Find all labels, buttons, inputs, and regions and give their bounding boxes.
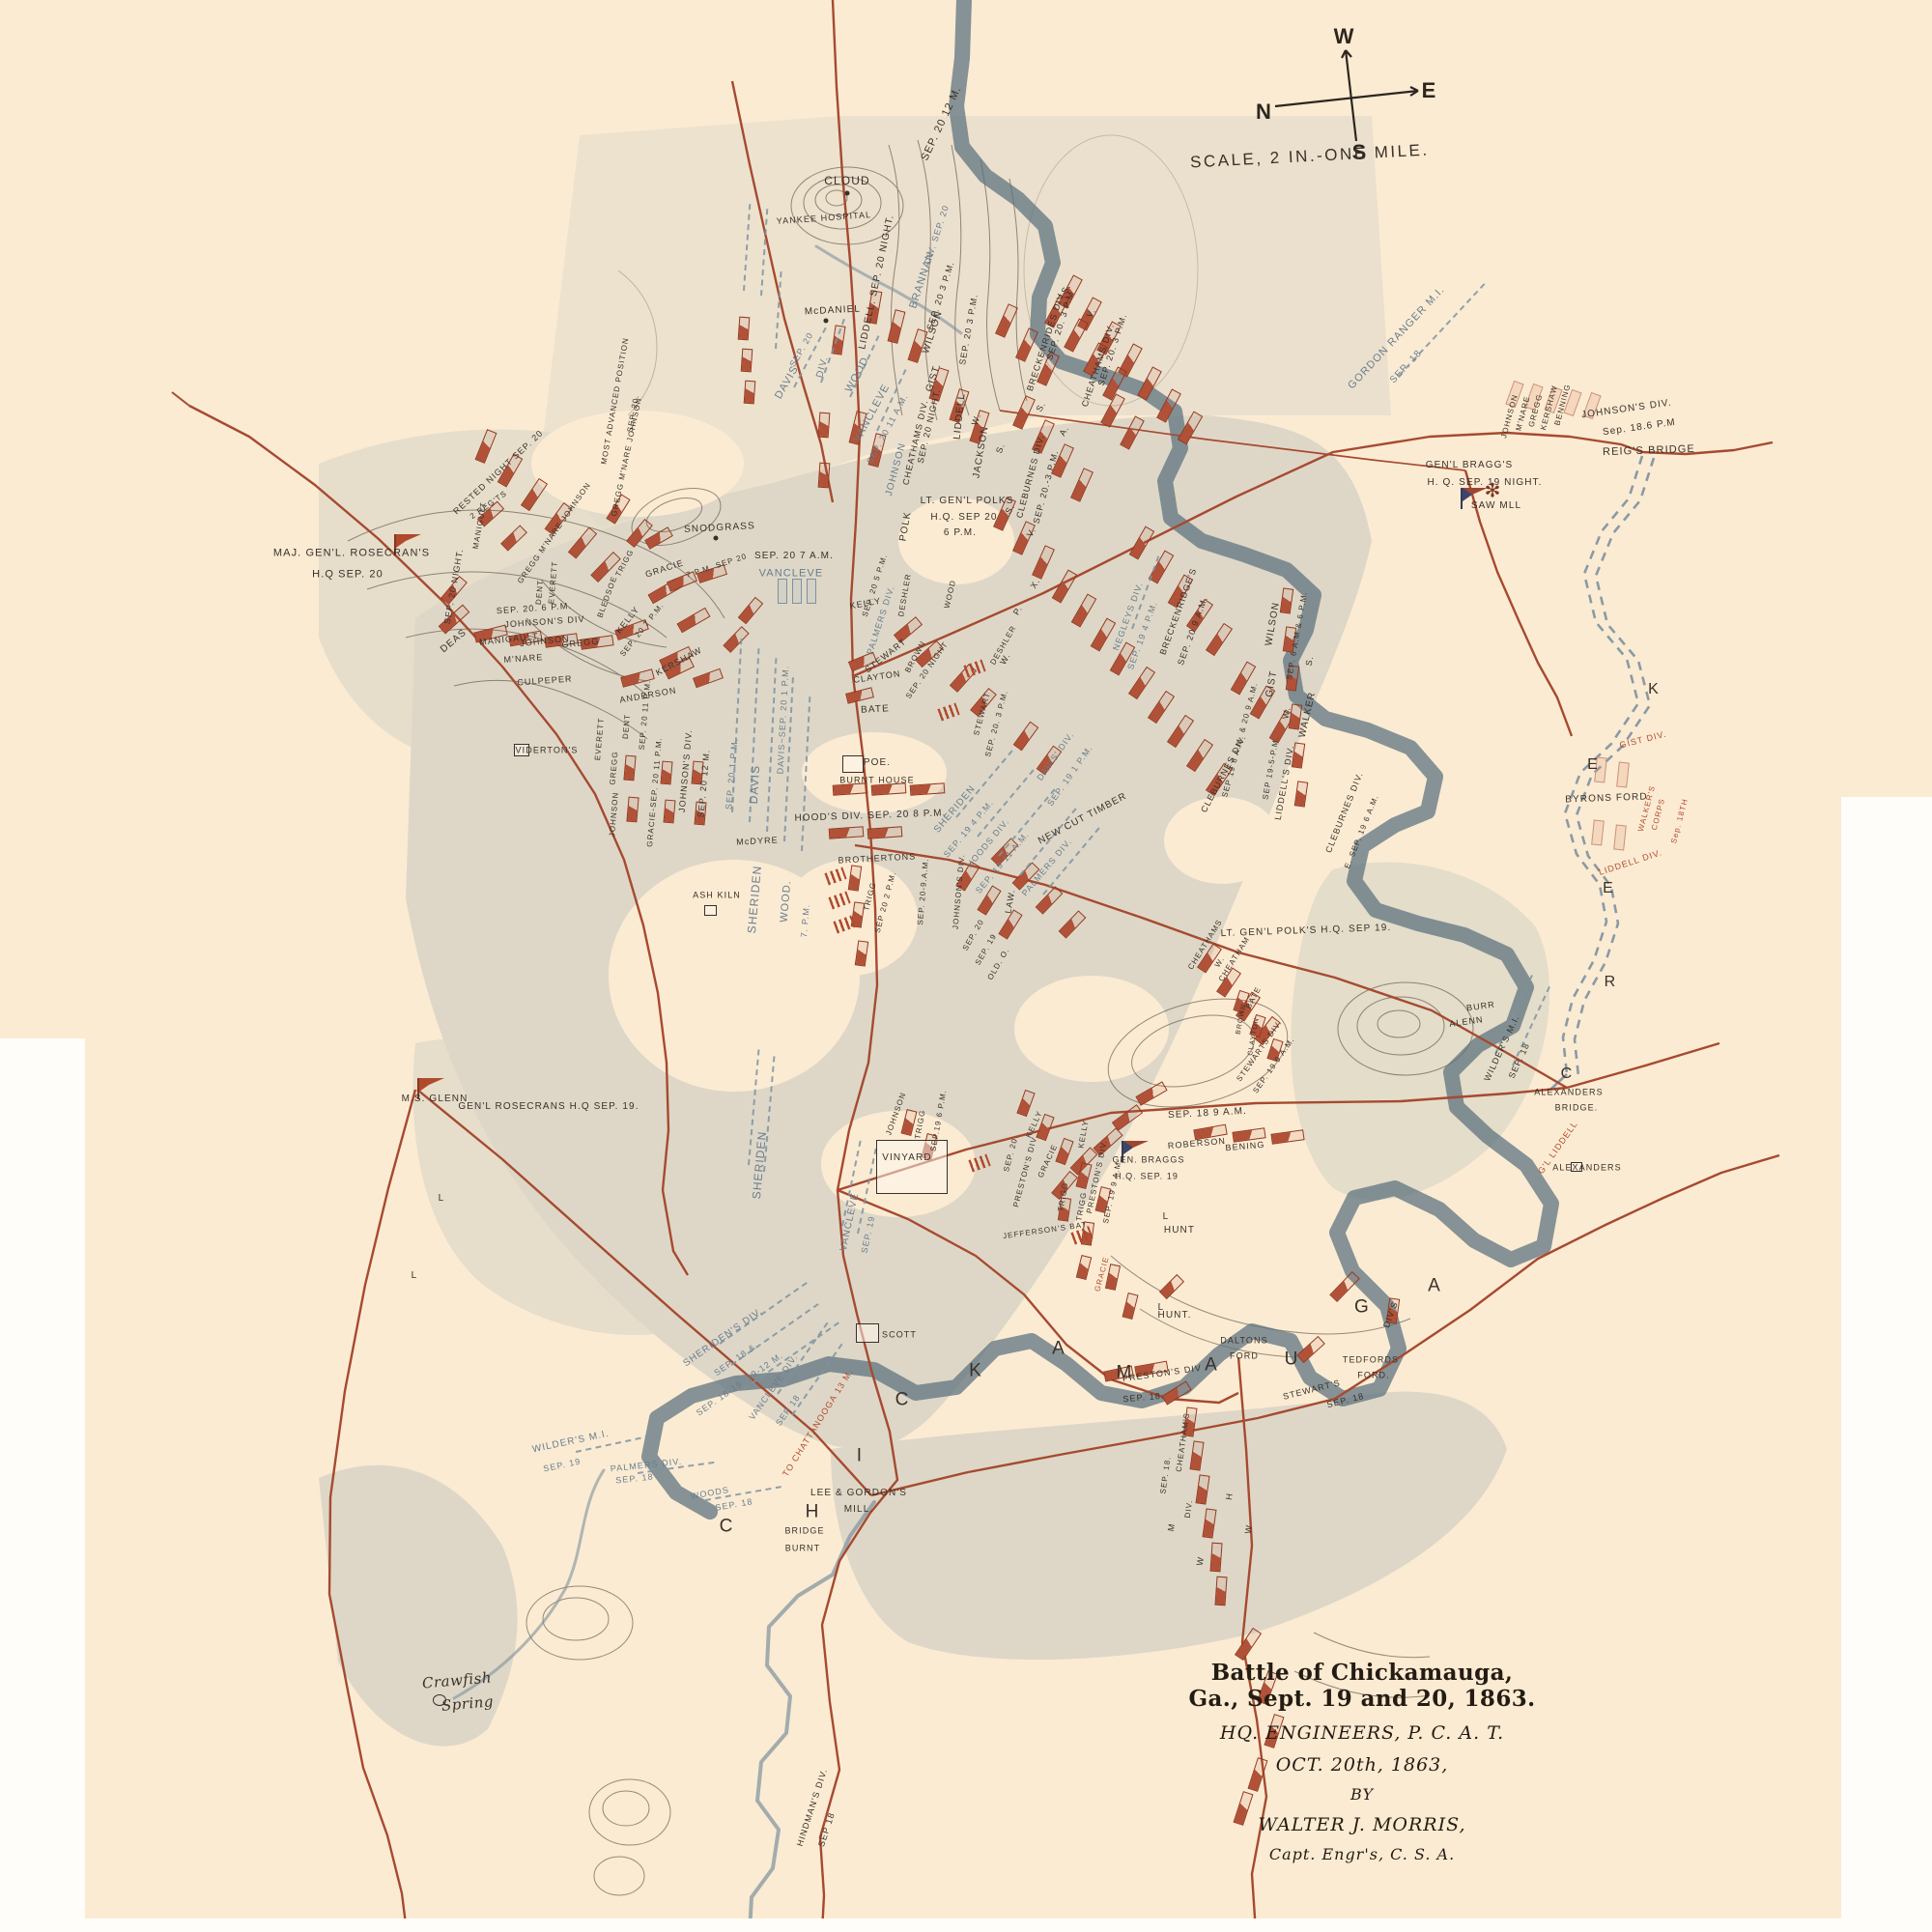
map-label: DENT [622, 714, 632, 740]
map-title: Battle of Chickamauga, Ga., Sept. 19 and… [1183, 1660, 1541, 1712]
map-label: SEP 18 [775, 1393, 803, 1427]
map-label: DIV. [815, 355, 831, 380]
map-label: JOHNSON [609, 791, 620, 837]
map-label: REIG'S BRIDGE [1603, 444, 1695, 458]
map-label: EVERETT [594, 717, 606, 760]
map-label: E [1587, 757, 1599, 773]
map-label: EVERETT [548, 560, 559, 604]
map-label: H.Q. SEP 20 [930, 513, 997, 523]
map-label: Sep. 18TH [1670, 798, 1690, 845]
map-label: CLAYTON [853, 669, 901, 685]
map-label: SEP. 19 [543, 1457, 582, 1473]
map-label: SEP. 18 9 A.M. [1168, 1107, 1247, 1121]
map-label: BYRONS FORD [1565, 793, 1648, 806]
map-label: C [895, 1391, 910, 1409]
title-rank-line: Capt. Engr's, C. S. A. [1183, 1845, 1541, 1863]
map-label: A [1052, 1340, 1065, 1358]
map-label: GREGG [609, 751, 619, 785]
map-label: BATE [861, 704, 890, 716]
map-label: VANCLEVE [839, 1192, 862, 1252]
map-label: ASH KILN [693, 892, 741, 900]
map-label: DESHLER [897, 573, 913, 617]
map-label: JEFFERSON'S BAT. [1003, 1221, 1091, 1241]
map-label: MAJ. GEN'L. ROSECRAN'S [273, 549, 430, 559]
map-label: S. [995, 441, 1007, 454]
map-label: TRIGG [863, 881, 878, 912]
map-label: U [1285, 1350, 1299, 1369]
map-label: BATE [1245, 985, 1264, 1010]
map-label: PRESTON'S DIV [1122, 1364, 1202, 1383]
map-label: S. [1305, 655, 1316, 667]
map-label: HOOD'S DIV. SEP. 20 8 P.M. [794, 809, 946, 823]
map-label: X. [1029, 577, 1041, 590]
map-label: ROBERSON [1168, 1137, 1227, 1151]
map-label: LEE & GORDON'S [810, 1489, 907, 1498]
map-label: ALENN [1449, 1015, 1484, 1029]
map-label: BRIDGE [784, 1527, 824, 1536]
map-label: SEP. 20 3 P.M. [958, 293, 980, 365]
map-label: SEP.19 6 P.M. [929, 1089, 948, 1151]
map-label: S. [1035, 400, 1047, 413]
map-label: ALEXANDERS [1552, 1164, 1622, 1173]
map-label: SEP. 18. [1159, 1456, 1172, 1494]
map-label: YANKEE HOSPITAL [776, 211, 871, 226]
map-label: McDANIEL [805, 304, 862, 317]
map-label: GEN'L BRAGG'S [1426, 461, 1514, 470]
map-label: WILDER'S M.I. [531, 1430, 611, 1456]
map-label: JACKSON [972, 425, 990, 479]
map-label: SHERIDEN'S DIV. [682, 1307, 765, 1369]
map-label: DENT [535, 580, 545, 606]
map-label: WOODS [690, 1486, 729, 1501]
map-label: A. [1058, 424, 1070, 438]
map-label: VANCLEVE [759, 569, 824, 580]
compass-north: N [1256, 99, 1271, 125]
map-label: SEP. 19 [860, 1215, 876, 1255]
map-label: C [720, 1518, 734, 1536]
map-label: SEP. 20 NIGHT. [443, 548, 466, 625]
map-label: SEP. 20. [1003, 1134, 1020, 1173]
map-label: SHERIDEN [746, 865, 763, 934]
map-label: L [412, 1271, 418, 1281]
map-label: LIDDELL [953, 392, 968, 440]
map-label: L [1158, 1303, 1165, 1313]
map-label: BURNT HOUSE [839, 777, 914, 785]
map-label: E [1603, 881, 1614, 896]
map-label: BLEDSOE [596, 575, 618, 618]
map-label: K [969, 1362, 982, 1380]
map-label: SEP 18 [817, 1811, 837, 1848]
map-label: BRECKENRIDES DIV. [1026, 290, 1066, 392]
map-label: SEP. 18 [1508, 1041, 1532, 1080]
title-date-line: OCT. 20th, 1863, [1183, 1754, 1541, 1776]
map-label: 7. P.M. [800, 903, 811, 938]
map-label: M [1117, 1364, 1133, 1382]
map-label: W [1244, 1523, 1255, 1534]
map-label: GREGG [561, 637, 600, 649]
map-label: 7 P.M. SEP 20 [686, 553, 749, 580]
map-label: WILSON [1264, 601, 1282, 646]
map-label: SEP. 20-9.A.M. [917, 858, 930, 925]
map-label: JOHNSON'S DIV. [1581, 398, 1673, 420]
map-label: P. [1012, 605, 1025, 617]
map-label: BROTHERTONS [838, 852, 916, 865]
map-label: L [1163, 1212, 1170, 1222]
map-label: PALMERS DIV. [610, 1458, 682, 1474]
map-label: POE. [864, 758, 891, 768]
map-label: H.Q SEP. 20 [312, 570, 384, 581]
map-label: SEP. 20 12 M. [696, 749, 711, 818]
map-label: DIV. SEP. 20 [923, 204, 951, 266]
map-label: KERSHAW [655, 646, 704, 678]
map-label: W [1196, 1555, 1207, 1566]
map-label: A [1428, 1277, 1441, 1295]
map-label: CULPEPER [517, 675, 573, 688]
map-label: K [1648, 682, 1660, 697]
map-label: POLK [898, 511, 913, 542]
map-label: A [1205, 1356, 1218, 1375]
map-label: R [1605, 975, 1617, 990]
map-label: OLD. O. [986, 947, 1010, 981]
map-label: L [439, 1194, 445, 1204]
map-label: SEP 20 2 P.M. [874, 870, 898, 933]
map-label: FORD. [1357, 1372, 1390, 1380]
map-label: WOOD [944, 579, 958, 609]
map-label: GEN'L ROSECRANS H.Q SEP. 19. [458, 1102, 639, 1112]
map-label: H.Q. SEP. 19 [1115, 1173, 1179, 1181]
map-label: GRACIE [1094, 1256, 1110, 1293]
map-label: V. [1086, 306, 1098, 319]
map-page: ✻ CLOUDYANKEE HOSPITALLIDDELL. SEP. 20 N… [0, 0, 1932, 1932]
map-label: CORPS [1651, 798, 1667, 832]
map-label: SEP. 18. [1122, 1392, 1165, 1405]
map-label: SEP. 20 12 M. [920, 85, 963, 163]
map-label: LIDDELL DIV. [1598, 848, 1663, 877]
map-label: GRACIE-SEP. 20 11 P.M. [646, 737, 664, 847]
map-label: WOOD. [780, 880, 794, 923]
map-label: SAW MLL [1471, 501, 1521, 511]
map-label: JOHNSON'S DIV. [678, 729, 694, 813]
map-label: DIV. [1184, 1499, 1195, 1519]
map-label: DAVIS~SEP. 20 1 P.M. [777, 665, 791, 774]
map-label: TRIGG [1057, 1181, 1069, 1212]
map-label: SEP. 20 [788, 331, 815, 369]
map-label: KELLY [1077, 1120, 1090, 1150]
map-label: GRACIE [1037, 1143, 1059, 1179]
map-label: HUNT [1164, 1226, 1195, 1236]
map-label: 6 P.M. [944, 528, 977, 538]
map-label: BENING [1225, 1141, 1265, 1153]
map-label: SNODGRASS [684, 522, 755, 535]
map-label: CHEATHAM'S [1176, 1412, 1192, 1473]
map-label: GIST [1265, 669, 1280, 697]
map-label: TRIGG [614, 549, 636, 579]
map-label: LT. GEN'L POLK'S H.Q. SEP 19. [1221, 923, 1392, 939]
map-label: TEDFORDS [1343, 1356, 1399, 1365]
map-label: VIDERTON'S [516, 747, 579, 755]
map-label: W. [1281, 706, 1292, 720]
map-label: SCOTT [882, 1331, 917, 1340]
map-label: H [806, 1503, 820, 1521]
map-label: SEP. 20 7 P.M. [619, 602, 666, 659]
map-label: WALKER [1298, 691, 1319, 738]
map-label: SEP 19 6 A.M. & 20 9 A.M. [1221, 682, 1260, 799]
title-by-line: BY [1183, 1785, 1541, 1804]
map-label: JOHNSON'S DIV [504, 615, 585, 630]
map-label: JOHNSON [885, 1092, 908, 1137]
map-label: GRACIE [644, 558, 685, 579]
map-label: SHERIDEN [751, 1130, 768, 1200]
map-label: TO CHATTANOOGA 13 M. [781, 1368, 855, 1479]
map-label: MILL. [844, 1505, 874, 1515]
map-label: Spring [440, 1694, 494, 1714]
title-author-line: WALTER J. MORRIS, [1183, 1814, 1541, 1835]
title-hq-line: HQ. ENGINEERS, P. C. A. T. [1183, 1722, 1541, 1744]
map-label: SEP. 18 [1389, 349, 1425, 385]
map-label: DAVIS [774, 364, 801, 401]
map-label: DALTONS [1220, 1337, 1267, 1346]
map-label: I [857, 1447, 863, 1465]
compass-west: W [1334, 24, 1354, 49]
map-label: PALMERS DIV. [1021, 837, 1074, 897]
map-label: FORD [1230, 1352, 1259, 1361]
map-label: V. [1026, 526, 1038, 538]
map-label: TRIGG [914, 1109, 926, 1140]
map-label: VINYARD [882, 1153, 931, 1163]
map-label: M'NARE [503, 653, 543, 665]
map-label: BROWN [1236, 1003, 1248, 1035]
map-label: SEP. 20 1 P.M. [724, 737, 739, 810]
map-label: DEAS [440, 628, 469, 655]
map-label: SEP. 19 9 A.M. [1102, 1158, 1123, 1225]
map-label: McDYRE [736, 836, 779, 846]
map-label: G [1354, 1298, 1370, 1317]
map-label: WOOD [844, 355, 871, 394]
map-label: SEP. 18 [1326, 1392, 1366, 1409]
map-label: H. Q. SEP. 19 NIGHT. [1427, 478, 1542, 488]
map-label: DIV'S [1382, 1300, 1400, 1329]
map-label: JOHNSON'S DIV. [952, 854, 967, 930]
map-label: M [1167, 1522, 1177, 1532]
title-block: Battle of Chickamauga, Ga., Sept. 19 and… [1183, 1660, 1541, 1863]
map-label: C [1561, 1066, 1574, 1082]
map-label: ALEXANDERS [1534, 1089, 1604, 1097]
map-label: GIST DIV. [1619, 730, 1668, 751]
map-label: SEP. 20 7 A.M. [754, 552, 834, 561]
map-label: SEP. 18 [615, 1472, 654, 1485]
compass-east: E [1422, 78, 1436, 103]
map-label: DAVIS [748, 764, 761, 804]
map-label: SEP. 6 A.M & 6 P.M. [1286, 591, 1309, 681]
map-label: BURR [1466, 1000, 1496, 1012]
map-label: LIDDELL. SEP. 20 NIGHT. [858, 213, 895, 350]
map-label: H [1225, 1492, 1235, 1500]
labels-layer: CLOUDYANKEE HOSPITALLIDDELL. SEP. 20 NIG… [0, 0, 1932, 1932]
map-label: Sep. 18.6 P.M [1602, 418, 1676, 439]
map-label: SEP. 20 11 P.M. [639, 679, 652, 750]
map-label: CLOUD [824, 175, 870, 186]
map-label: SEP. 18 [715, 1497, 754, 1513]
map-label: LT. GEN'L POLKS [921, 497, 1014, 506]
map-label: LAW. [1004, 889, 1016, 915]
map-label: Crawfish [421, 1670, 492, 1690]
map-label: BURNT [785, 1545, 821, 1553]
map-label: BRIDGE. [1555, 1104, 1599, 1113]
map-label: WILSON [922, 310, 945, 355]
map-label: GEN. BRAGGS [1112, 1156, 1184, 1165]
